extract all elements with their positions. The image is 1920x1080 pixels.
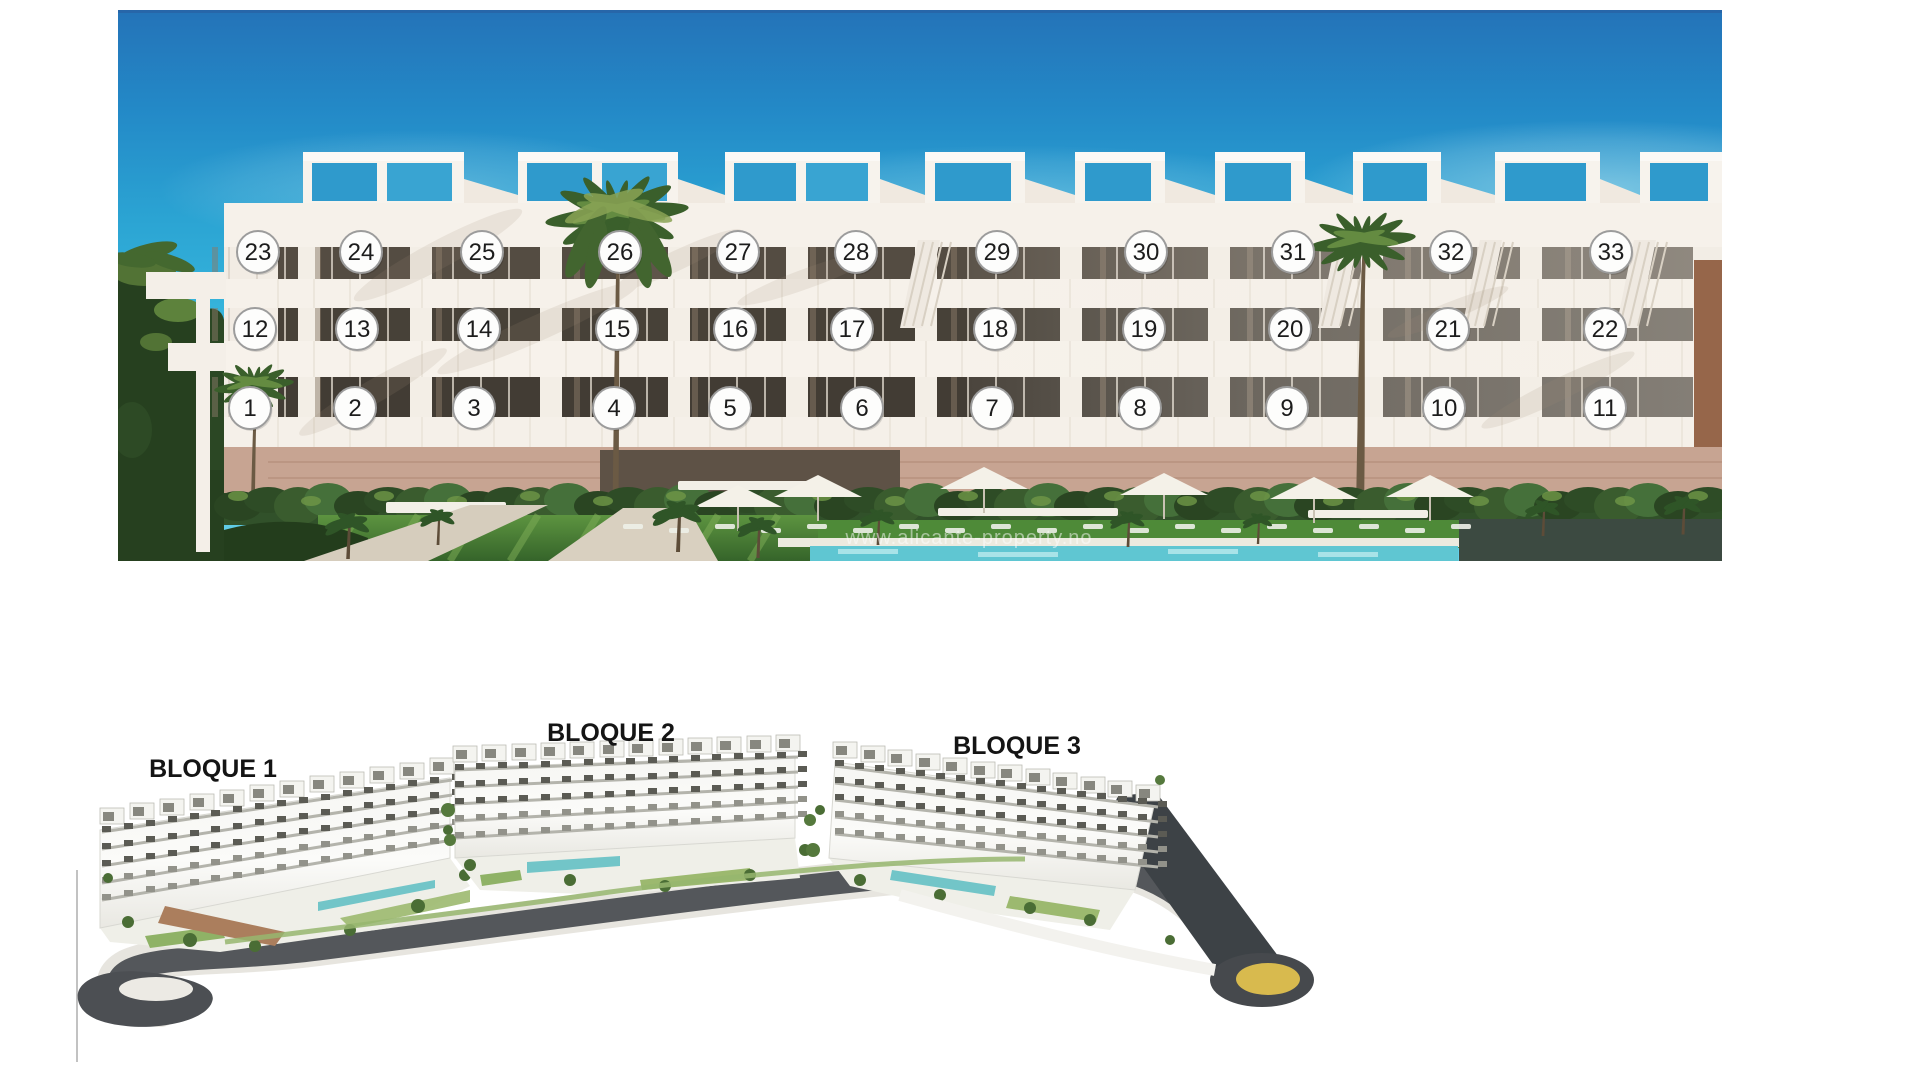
svg-text:21: 21 [1435, 316, 1462, 343]
svg-text:16: 16 [722, 316, 749, 343]
svg-text:29: 29 [984, 239, 1011, 266]
svg-text:9: 9 [1280, 395, 1293, 422]
svg-text:27: 27 [725, 239, 752, 266]
svg-text:BLOQUE 2: BLOQUE 2 [547, 719, 675, 747]
svg-text:6: 6 [855, 395, 868, 422]
svg-text:7: 7 [985, 395, 998, 422]
svg-text:10: 10 [1431, 395, 1458, 422]
svg-text:25: 25 [469, 239, 496, 266]
svg-text:26: 26 [607, 239, 634, 266]
svg-text:BLOQUE 3: BLOQUE 3 [953, 732, 1081, 760]
svg-text:1: 1 [243, 395, 256, 422]
svg-text:17: 17 [839, 316, 866, 343]
svg-text:23: 23 [245, 239, 272, 266]
svg-text:3: 3 [467, 395, 480, 422]
svg-text:13: 13 [344, 316, 371, 343]
svg-text:20: 20 [1277, 316, 1304, 343]
svg-text:32: 32 [1438, 239, 1465, 266]
svg-text:www.alicante-property.no: www.alicante-property.no [844, 527, 1092, 549]
svg-text:8: 8 [1133, 395, 1146, 422]
svg-text:28: 28 [843, 239, 870, 266]
svg-text:4: 4 [607, 395, 620, 422]
svg-text:11: 11 [1593, 395, 1618, 422]
svg-text:14: 14 [466, 316, 493, 343]
svg-text:5: 5 [723, 395, 736, 422]
svg-text:BLOQUE 1: BLOQUE 1 [149, 755, 277, 783]
svg-text:18: 18 [982, 316, 1009, 343]
svg-text:33: 33 [1598, 239, 1625, 266]
svg-text:24: 24 [348, 239, 375, 266]
svg-text:12: 12 [242, 316, 269, 343]
svg-text:31: 31 [1280, 239, 1307, 266]
svg-text:19: 19 [1131, 316, 1158, 343]
svg-text:30: 30 [1133, 239, 1160, 266]
svg-text:15: 15 [604, 316, 631, 343]
svg-text:2: 2 [348, 395, 361, 422]
svg-text:22: 22 [1592, 316, 1619, 343]
